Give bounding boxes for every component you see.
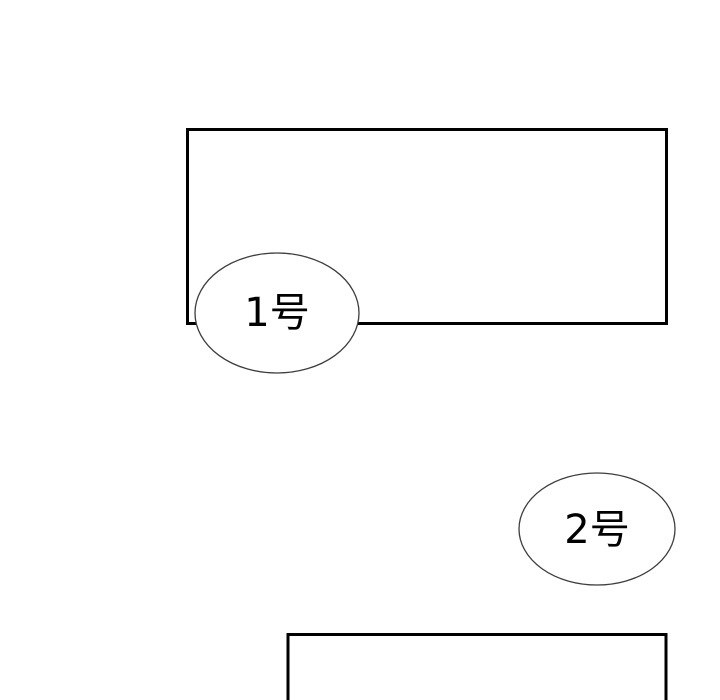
diagram-canvas: 1号 2号 [0,0,720,700]
diagram-stage: 1号 2号 [0,0,720,700]
label-bubble-2-text: 2号 [564,507,629,553]
bottom-rectangle [288,635,666,700]
label-bubble-1-text: 1号 [244,290,309,336]
